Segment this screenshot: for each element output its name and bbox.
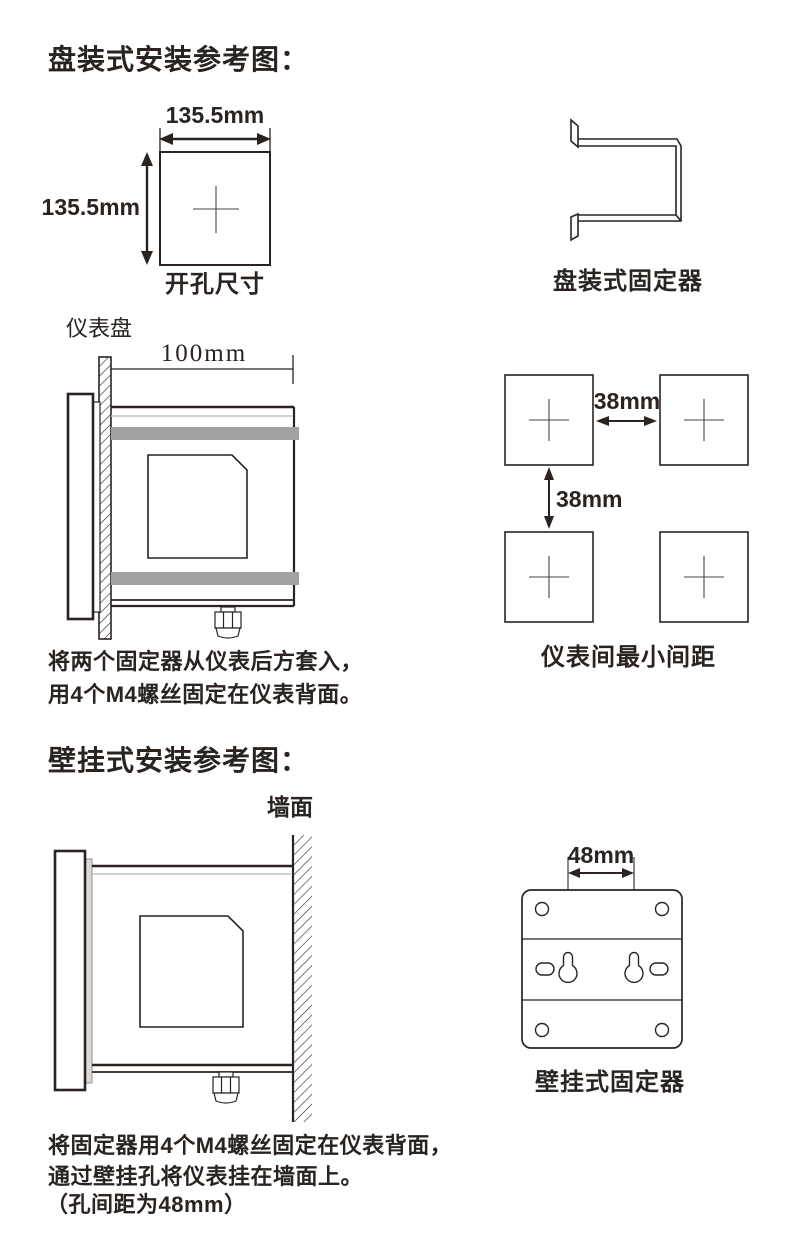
cable-gland bbox=[213, 1072, 239, 1103]
hole-pitch-arrow bbox=[568, 868, 634, 878]
height-dimension-arrow bbox=[141, 152, 153, 265]
panel-fixer-caption: 盘装式固定器 bbox=[543, 268, 713, 296]
fixer-band-top bbox=[111, 427, 299, 440]
horizontal-gap-arrow bbox=[596, 416, 657, 426]
bracket-top-flange bbox=[571, 120, 578, 147]
panel-instruction-line2: 用4个M4螺丝固定在仪表背面。 bbox=[48, 682, 362, 707]
fixer-band-bottom bbox=[111, 572, 299, 585]
wall-mount-title: 壁挂式安装参考图： bbox=[48, 745, 309, 777]
cable-gland bbox=[215, 607, 241, 638]
panel-wall-hatched bbox=[99, 357, 111, 639]
cutout-width-label: 135.5mm bbox=[158, 102, 272, 128]
spacing-horizontal-label: 38mm bbox=[590, 388, 664, 414]
panel-side-view bbox=[68, 355, 299, 639]
cutout-caption: 开孔尺寸 bbox=[158, 271, 272, 299]
diagram-linework bbox=[0, 0, 790, 1254]
spacing-caption: 仪表间最小间距 bbox=[526, 644, 731, 672]
panel-label: 仪表盘 bbox=[66, 316, 132, 341]
manual-page: 盘装式安装参考图： 135.5mm 135.5mm 开孔尺寸 盘装式固定器 仪表… bbox=[0, 0, 790, 1254]
spacing-vertical-label: 38mm bbox=[556, 486, 622, 512]
panel-fixer-bracket bbox=[571, 120, 681, 240]
wall-instruction-line2: 通过壁挂孔将仪表挂在墙面上。 bbox=[48, 1164, 363, 1189]
wall-fixer-plate bbox=[522, 857, 682, 1048]
wall-fixer-caption: 壁挂式固定器 bbox=[525, 1069, 695, 1097]
wall-label: 墙面 bbox=[267, 794, 313, 820]
cutout-diagram bbox=[141, 128, 271, 265]
wall-hatch bbox=[294, 835, 312, 1122]
bracket-body bbox=[573, 139, 681, 221]
front-bezel bbox=[68, 394, 93, 619]
panel-mount-title: 盘装式安装参考图： bbox=[48, 44, 309, 76]
wall-side-view bbox=[55, 835, 312, 1122]
hole-pitch-label: 48mm bbox=[558, 842, 644, 868]
front-bezel bbox=[55, 851, 85, 1090]
wall-instruction-line1: 将固定器用4个M4螺丝固定在仪表背面， bbox=[48, 1133, 452, 1158]
width-dimension-arrow bbox=[159, 133, 271, 145]
vertical-gap-arrow bbox=[544, 467, 554, 529]
wall-instruction-line3: （孔间距为48mm） bbox=[46, 1192, 247, 1217]
cutout-height-label: 135.5mm bbox=[36, 194, 140, 220]
label-plate bbox=[148, 455, 247, 558]
label-plate bbox=[140, 916, 243, 1027]
depth-label: 100mm bbox=[148, 340, 260, 369]
bracket-bottom-flange bbox=[571, 214, 578, 240]
panel-instruction-line1: 将两个固定器从仪表后方套入， bbox=[48, 649, 363, 674]
